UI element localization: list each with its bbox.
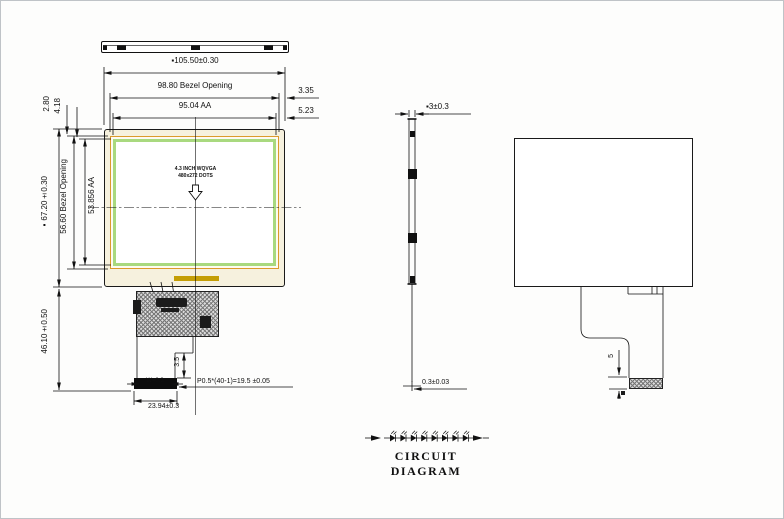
dim-stiffener-length: 3.5 xyxy=(174,357,181,367)
front-fpc-lines xyxy=(127,282,293,405)
dim-active-area-height: 53.856 AA xyxy=(88,177,96,214)
dim-active-area-width: 95.04 AA xyxy=(149,102,241,111)
dim-fpc-thickness: 0.3±0.03 xyxy=(422,379,449,387)
front-left-dimension-lines xyxy=(53,105,131,391)
led-symbol xyxy=(421,431,427,442)
dim-overall-height: ▪67.20±0.30 xyxy=(41,176,49,230)
dim-bezel-opening-height: 56.60 Bezel Opening xyxy=(60,159,68,234)
dim-pin-pitch: P0.5*(40-1)=19.5 ±0.05 xyxy=(197,378,270,386)
side-view-lines xyxy=(395,110,471,391)
panel-spec-line1: 4.3 INCH WQVGA xyxy=(167,166,224,173)
led-symbol xyxy=(400,431,406,442)
led-symbol xyxy=(442,431,448,442)
back-view-lines xyxy=(581,287,663,399)
dim-module-thickness: ▪3±0.3 xyxy=(426,103,449,112)
led-symbol xyxy=(463,431,469,442)
circuit-diagram-schematic xyxy=(365,431,489,442)
led-symbol xyxy=(452,431,458,442)
dim-right-offset-bezel: 3.35 xyxy=(293,87,319,96)
dim-back-fpc-tail: 5 xyxy=(608,354,615,358)
drawing-linework xyxy=(1,1,783,518)
centerlines xyxy=(89,117,301,415)
led-symbol xyxy=(390,431,396,442)
dim-fpc-length: 46.10±0.50 xyxy=(41,309,49,354)
panel-down-arrow xyxy=(189,185,202,200)
dim-connector-width: 23.94±0.3 xyxy=(148,403,179,411)
circuit-diagram-title: CIRCUIT DIAGRAM xyxy=(361,449,491,479)
dim-top-offset-bezel: 2.80 xyxy=(43,96,51,112)
dim-overall-width: ▪105.50±0.30 xyxy=(129,57,261,66)
panel-spec-line2: 480x272 DOTS xyxy=(167,173,224,180)
dim-top-offset-aa: 4.18 xyxy=(54,98,62,114)
lcd-module-drawing: ▪105.50±0.30 98.80 Bezel Opening 95.04 A… xyxy=(0,0,784,519)
dim-bezel-opening-width: 98.80 Bezel Opening xyxy=(119,82,271,91)
led-symbol xyxy=(432,431,438,442)
panel-spec-label: 4.3 INCH WQVGA 480x272 DOTS xyxy=(167,166,224,180)
dim-right-offset-aa: 5.23 xyxy=(293,107,319,116)
dim-contact-width: W=0.3 xyxy=(141,378,169,385)
led-symbol xyxy=(411,431,417,442)
front-top-dimension-lines xyxy=(104,67,319,135)
